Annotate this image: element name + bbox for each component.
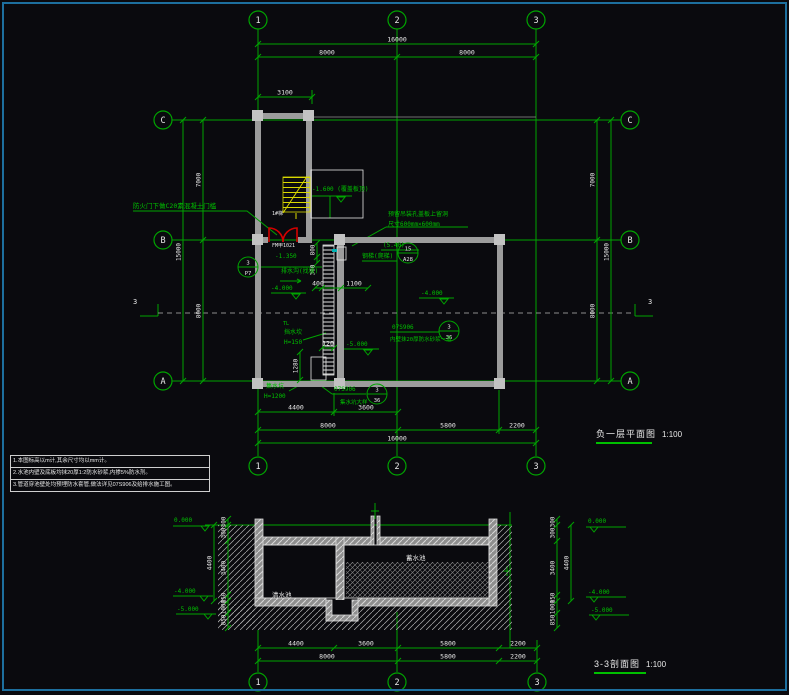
dim-label: 1100 [346, 280, 362, 288]
annotation-text: 07S906 [334, 386, 356, 393]
cad-viewport: 1600080008000310015000700080007000800015… [0, 0, 789, 695]
dim-label: 800 [310, 244, 317, 255]
grid-bubble-label: B [627, 236, 632, 246]
annotation-text: 预留吊装孔盖板上留洞 [388, 210, 448, 218]
annotation-text: -5.000 [346, 341, 368, 348]
dim-label: 5800 [440, 653, 456, 661]
water-fill [346, 562, 489, 598]
grid-bubble-label: C [627, 116, 632, 126]
annotation-text: -5.000 [591, 607, 613, 614]
sec-wall [489, 519, 497, 606]
dim-label: 120 [322, 340, 334, 348]
annotation-text: 3 [648, 298, 652, 306]
dim-label: 7000 [196, 172, 203, 187]
floor-slab [255, 598, 326, 606]
annotation-text: -1.350 [275, 253, 297, 260]
stair-flight [283, 177, 310, 212]
elevation-marker [590, 597, 598, 602]
annotation-text: 1#梯 [272, 210, 283, 217]
annotation-text: -4.000 [174, 588, 196, 595]
column [494, 378, 505, 389]
dim-label: 2200 [510, 640, 526, 648]
dim-label: 15000 [604, 243, 611, 261]
hoisting-hole [311, 170, 363, 218]
earth-hatch [497, 525, 512, 606]
dim-label: 1000 [221, 599, 228, 614]
dim-label: 8000 [196, 303, 203, 318]
annotation-text: 排水沟(找坡) [281, 267, 318, 275]
column [252, 234, 263, 245]
grid-bubble-label: 1 [255, 462, 260, 472]
annotation-text: -4.000 [588, 589, 610, 596]
dim-label: 4400 [288, 404, 304, 412]
annotation-text: 钢梯(爬梯) [362, 252, 393, 260]
dim-label: 850 [221, 614, 228, 625]
sec-wall [255, 519, 263, 606]
dim-label: 400 [312, 280, 324, 288]
dim-label: 300 [550, 527, 557, 538]
dim-label: 850 [550, 614, 557, 625]
plan-title-text: 负一层平面图 [596, 429, 656, 439]
annotation-text: -1.600 (覆盖板顶) [312, 185, 369, 193]
wall [298, 237, 312, 243]
valve-mark [332, 249, 337, 252]
annotation-text: 内壁抹20厚防水砂浆一道 [390, 335, 452, 343]
annotation-text: 防火门下做C20素混凝土门槛 [133, 201, 217, 210]
dim-label: 3400 [221, 560, 228, 575]
annotation-text: 3 [133, 298, 137, 306]
elevation-marker [292, 294, 300, 299]
hole-upstand [377, 516, 380, 545]
plan-title-underline [596, 442, 652, 444]
annotation-text: 0.000 [174, 517, 192, 524]
dim-label: 3100 [277, 89, 293, 97]
pit-interior [332, 600, 352, 615]
annotation-text: 尺寸600mm×600mm [388, 220, 440, 228]
leader [352, 227, 386, 246]
column [334, 234, 345, 245]
annotation-text: -4.000 [271, 285, 293, 292]
annotation-text: 蓄水池 [406, 553, 426, 562]
elevation-marker [590, 527, 598, 532]
dim-label: 2200 [509, 422, 525, 430]
grid-bubble-label: 3 [533, 16, 538, 26]
detail-ref-sheet: P7 [245, 271, 252, 277]
annotation-text: TL [283, 321, 289, 327]
general-notes-table: 1.本图标高以m计,其余尺寸均以mm计。 2.水池内壁及底板均抹20厚1:2防水… [10, 455, 210, 492]
dim-label: 300 [221, 516, 228, 527]
dim-label: 8000 [320, 422, 336, 430]
earth-hatch [218, 604, 512, 630]
cad-canvas[interactable]: 1600080008000310015000700080007000800015… [0, 0, 789, 695]
wall [337, 243, 344, 387]
annotation-text: 清水池 [272, 590, 292, 599]
dim-label: 7000 [590, 172, 597, 187]
section-title-text: 3-3剖面图 [594, 659, 640, 669]
elevation-marker [204, 614, 212, 619]
cover-slab [344, 537, 371, 545]
dim-label: 3600 [358, 640, 374, 648]
dim-label: 4400 [564, 555, 571, 570]
grid-bubble-label: B [160, 236, 165, 246]
elevation-marker [440, 299, 448, 304]
note-row: 3.管道穿池壁处均预埋防水套管,做法详见07S906及给排水施工图。 [10, 480, 210, 492]
detail-ref-number: 3 [246, 261, 249, 267]
grid-bubble-label: 2 [394, 16, 399, 26]
annotation-text: -4.000 [421, 290, 443, 297]
dim-label: 8000 [319, 49, 335, 57]
pit-bottom [326, 615, 358, 621]
grid-bubble-label: 2 [394, 678, 399, 688]
dim-label: 16000 [387, 435, 407, 443]
cover-slab [380, 537, 489, 545]
grid-bubble-label: 2 [394, 462, 399, 472]
dim-label: 300 [221, 527, 228, 538]
detail-ref-number: 3 [447, 325, 450, 331]
column [252, 378, 263, 389]
dim-label: 15000 [176, 243, 183, 261]
dim-label: 8000 [590, 303, 597, 318]
annotation-text: 0.000 [588, 518, 606, 525]
hole-upstand [371, 516, 374, 545]
elevation-marker [364, 350, 372, 355]
detail-ref-number: 3 [375, 388, 378, 394]
ladder-steel [323, 245, 334, 375]
annotation-text: 集水坑大样 [340, 398, 368, 406]
annotation-text: FM甲1021 [272, 243, 295, 249]
column [494, 234, 505, 245]
note-row: 2.水池内壁及底板均抹20厚1:2防水砂浆,内掺5%防水剂。 [10, 468, 210, 480]
grid-bubble-label: 1 [255, 678, 260, 688]
annotation-text: H=1200 [264, 393, 286, 400]
dim-label: 16000 [387, 36, 407, 44]
annotation-text: H=150 [284, 339, 302, 346]
annotation-text: -5.000 [177, 606, 199, 613]
cover-slab [258, 537, 336, 545]
section-title: 3-3剖面图1:100 [594, 657, 666, 674]
detail-ref-sheet: A28 [403, 257, 413, 263]
dim-label: 1280 [293, 358, 300, 373]
grid-bubble-label: A [160, 377, 165, 387]
dim-label: 8000 [459, 49, 475, 57]
dim-label: 2200 [510, 653, 526, 661]
dim-label: 4400 [288, 640, 304, 648]
dim-label: 1000 [550, 599, 557, 614]
elevation-marker [592, 615, 600, 620]
wall [255, 113, 261, 387]
elevation-marker [200, 596, 208, 601]
grid-bubble-label: C [160, 116, 165, 126]
dim-label: 5800 [440, 422, 456, 430]
column [303, 110, 314, 121]
grid-bubble-label: 3 [533, 462, 538, 472]
note-row: 1.本图标高以m计,其余尺寸均以mm计。 [10, 455, 210, 468]
dim-label: 300 [550, 516, 557, 527]
grid-bubble-label: 3 [534, 678, 539, 688]
grid-bubble-label: 1 [255, 16, 260, 26]
annotation-text: 集水坑 [266, 382, 284, 390]
detail-ref-number: 15 [405, 247, 412, 253]
elevation-marker [337, 197, 345, 202]
section-title-scale: 1:100 [646, 660, 666, 669]
plan-title: 负一层平面图1:100 [596, 427, 682, 444]
grid-bubble-label: A [627, 377, 632, 387]
floor-slab [358, 598, 489, 606]
plan-title-scale: 1:100 [662, 430, 682, 439]
annotation-text: (5.40) [383, 242, 405, 249]
dim-label: 5800 [440, 640, 456, 648]
dim-label: 8000 [319, 653, 335, 661]
dim-label: 3400 [550, 560, 557, 575]
sec-wall [336, 537, 344, 600]
elevation-marker [201, 526, 209, 531]
wall [340, 237, 503, 243]
annotation-text: 挡水坎 [284, 328, 302, 336]
detail-ref-sheet: 36 [374, 398, 381, 404]
annotation-text: 07S906 [392, 324, 414, 331]
dim-label: 4400 [207, 555, 214, 570]
section-title-underline [594, 672, 646, 674]
wall [497, 243, 503, 387]
column [252, 110, 263, 121]
